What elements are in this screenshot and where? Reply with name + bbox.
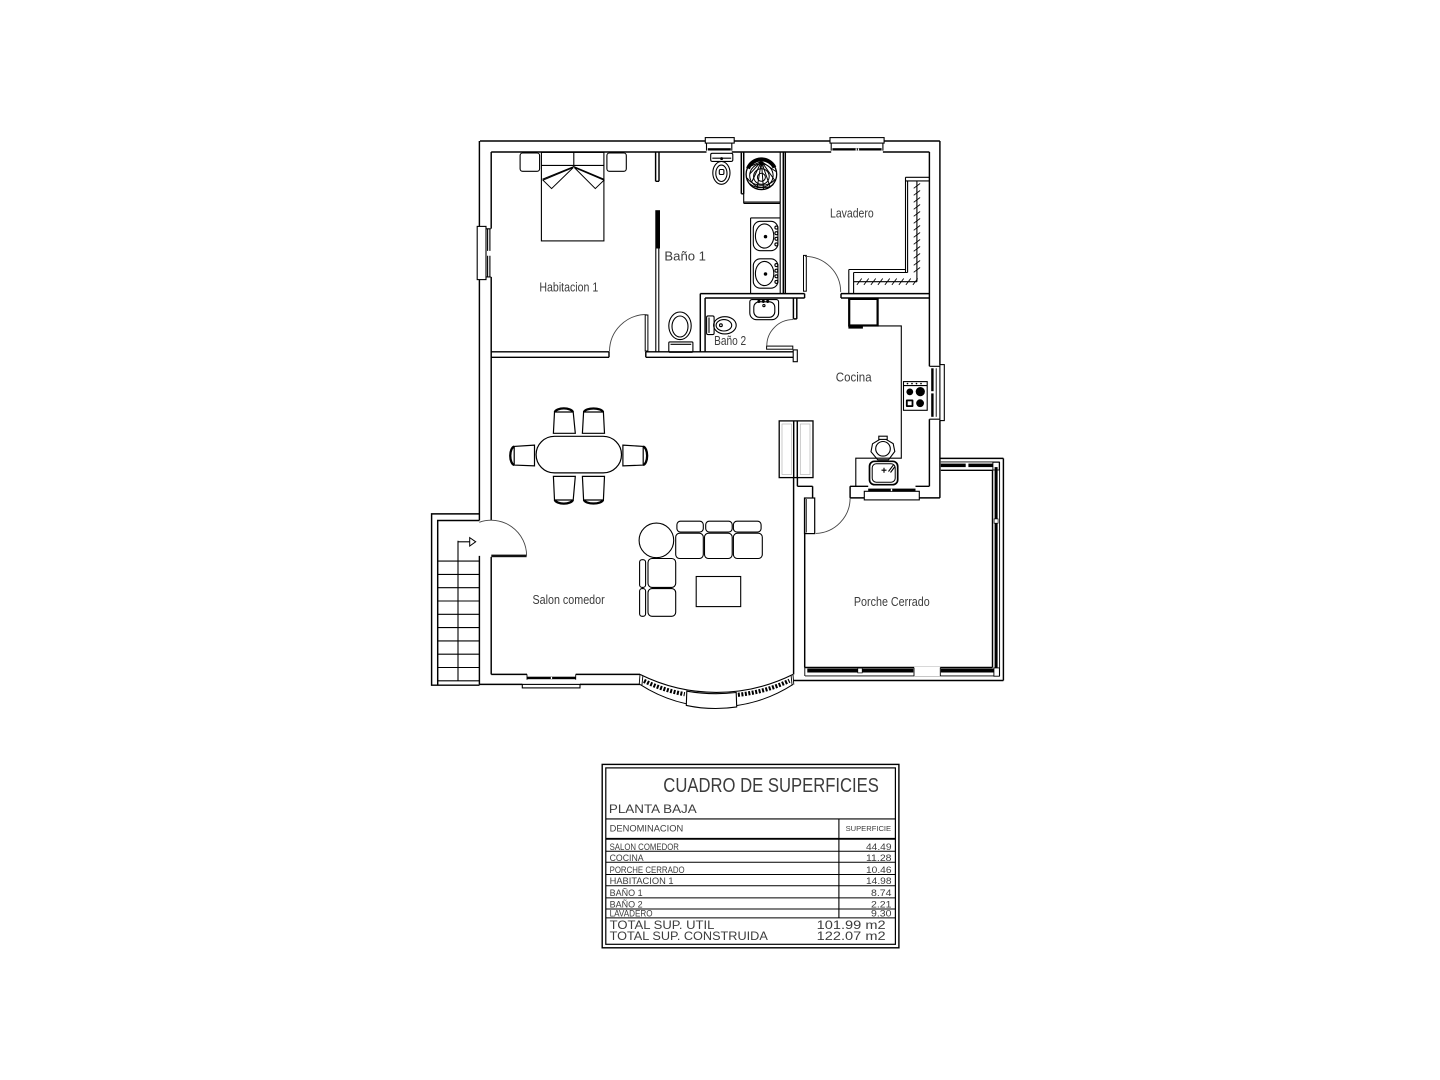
svg-text:11.28: 11.28 bbox=[866, 853, 892, 863]
svg-text:Habitacion 1: Habitacion 1 bbox=[539, 281, 598, 295]
svg-text:Cocina: Cocina bbox=[836, 370, 872, 384]
svg-text:HABITACION 1: HABITACION 1 bbox=[610, 876, 674, 886]
svg-text:SALON COMEDOR: SALON COMEDOR bbox=[610, 842, 680, 852]
svg-text:Lavadero: Lavadero bbox=[830, 207, 874, 221]
svg-text:TOTAL SUP. CONSTRUIDA: TOTAL SUP. CONSTRUIDA bbox=[610, 929, 769, 943]
svg-text:Porche Cerrado: Porche Cerrado bbox=[854, 595, 930, 609]
svg-text:44.49: 44.49 bbox=[866, 842, 892, 852]
svg-text:14.98: 14.98 bbox=[866, 876, 892, 886]
svg-text:10.46: 10.46 bbox=[866, 865, 892, 875]
svg-text:COCINA: COCINA bbox=[610, 853, 645, 863]
svg-text:Salon comedor: Salon comedor bbox=[533, 593, 605, 607]
svg-text:SUPERFICIE: SUPERFICIE bbox=[846, 824, 892, 833]
svg-text:8.74: 8.74 bbox=[871, 888, 892, 898]
svg-text:PLANTA BAJA: PLANTA BAJA bbox=[609, 802, 698, 816]
svg-text:BAÑO 1: BAÑO 1 bbox=[610, 888, 643, 898]
svg-text:Baño 2: Baño 2 bbox=[714, 334, 746, 348]
svg-text:PORCHE CERRADO: PORCHE CERRADO bbox=[610, 865, 685, 875]
svg-text:Baño 1: Baño 1 bbox=[664, 250, 706, 264]
svg-text:122.07 m2: 122.07 m2 bbox=[817, 929, 886, 943]
svg-text:DENOMINACION: DENOMINACION bbox=[610, 824, 684, 834]
svg-text:CUADRO DE SUPERFICIES: CUADRO DE SUPERFICIES bbox=[663, 775, 879, 797]
